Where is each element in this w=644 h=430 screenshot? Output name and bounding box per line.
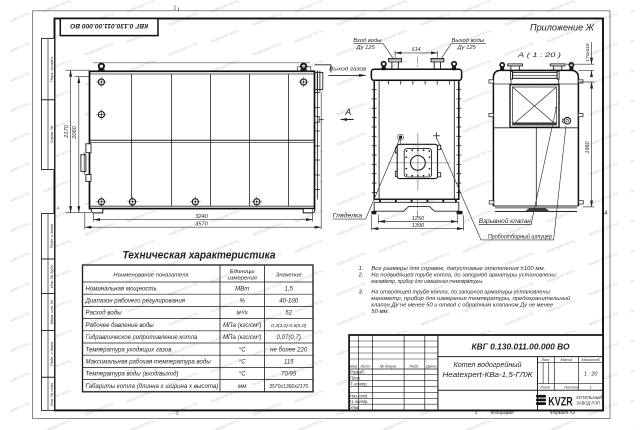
svg-text:2060: 2060	[72, 125, 78, 139]
svg-text:А ( 1 : 20 ): А ( 1 : 20 )	[517, 52, 561, 59]
svg-text:Все размеры для справок, допус: Все размеры для справок, допустимые откл…	[371, 266, 545, 272]
svg-text:клапан Ду не менее 50 и отвод: клапан Ду не менее 50 и отвод с обратным…	[371, 302, 554, 308]
svg-text:614: 614	[412, 47, 421, 53]
svg-text:На отводящей трубе котла, до з: На отводящей трубе котла, до запорной ар…	[371, 289, 551, 296]
svg-text:Инв. № дубл.: Инв. № дубл.	[49, 264, 54, 288]
svg-text:Расход воды: Расход воды	[86, 310, 123, 317]
svg-text:Диапазон рабочего регулировани: Диапазон рабочего регулирования	[85, 298, 186, 305]
svg-text:Лист: Лист	[539, 385, 551, 390]
svg-text:манометр, прибор для измерения: манометр, прибор для измерения температу…	[371, 295, 571, 302]
svg-text:2170: 2170	[64, 124, 70, 138]
svg-text:115: 115	[284, 359, 294, 366]
svg-text:50 мм.: 50 мм.	[371, 309, 389, 315]
svg-text:КОТЕЛЬНЫЙ: КОТЕЛЬНЫЙ	[576, 395, 602, 400]
svg-text:52: 52	[285, 310, 292, 317]
svg-text:1: 1	[174, 6, 177, 12]
svg-text:Номинальная мощность: Номинальная мощность	[86, 285, 157, 292]
svg-text:Подп.: Подп.	[409, 363, 419, 368]
svg-text:Т. контр.: Т. контр.	[350, 381, 368, 386]
svg-text:1: 1	[590, 385, 592, 390]
svg-text:Выход газов: Выход газов	[329, 66, 366, 72]
svg-text:Взам. инв. №: Взам. инв. №	[49, 299, 54, 324]
svg-text:°С: °С	[239, 371, 246, 378]
svg-text:Н. контр.: Н. контр.	[350, 399, 368, 404]
svg-text:3570х1390х2170: 3570х1390х2170	[269, 384, 308, 390]
svg-text:№ докум.: № докум.	[380, 363, 397, 368]
svg-text:Пров.: Пров.	[350, 375, 361, 380]
svg-text:Перв. примен.: Перв. примен.	[49, 56, 54, 82]
svg-text:Масштаб: Масштаб	[582, 357, 601, 362]
svg-text:Значение: Значение	[276, 272, 303, 278]
svg-text:Ду 125: Ду 125	[457, 45, 477, 51]
svg-text:%: %	[239, 298, 245, 305]
svg-text:0,3(3,0)-0,6(6,0): 0,3(3,0)-0,6(6,0)	[271, 323, 307, 329]
svg-text:Листов: Листов	[563, 385, 578, 390]
svg-text:Справ. №: Справ. №	[49, 125, 54, 143]
svg-text:0,07(0,7): 0,07(0,7)	[277, 334, 301, 341]
svg-text:40-100: 40-100	[279, 298, 299, 305]
svg-text:КВГ 0.130.011.00.000 ВО: КВГ 0.130.011.00.000 ВО	[69, 22, 148, 29]
svg-text:МВт: МВт	[235, 285, 249, 292]
svg-text:170х616: 170х616	[585, 43, 591, 62]
svg-text:Утв.: Утв.	[350, 405, 359, 410]
svg-text:Лит.: Лит.	[540, 357, 550, 362]
svg-text:1.: 1.	[359, 266, 364, 272]
svg-text:Температура уходящих газов: Температура уходящих газов	[86, 346, 172, 353]
svg-text:Ду 125: Ду 125	[356, 45, 376, 51]
svg-text:Подп. и дата: Подп. и дата	[49, 341, 54, 366]
svg-text:А: А	[344, 107, 351, 117]
svg-text:м³/ч: м³/ч	[237, 310, 249, 317]
svg-text:1960: 1960	[585, 142, 591, 154]
svg-text:Котел водогрейный: Котел водогрейный	[454, 361, 522, 369]
svg-text:Изм.: Изм.	[350, 363, 358, 368]
svg-text:А: А	[56, 206, 60, 211]
svg-text:Пробоотборный штуцер: Пробоотборный штуцер	[488, 233, 553, 240]
svg-text:МПа (кгс/см²): МПа (кгс/см²)	[223, 322, 261, 329]
svg-text:Единицы: Единицы	[230, 269, 255, 275]
svg-text:1 : 20: 1 : 20	[584, 372, 598, 378]
svg-text:измерения: измерения	[227, 276, 257, 282]
svg-text:не более 220: не более 220	[270, 346, 308, 353]
svg-text:Лист: Лист	[359, 363, 371, 368]
svg-text:Температура воды (вход/выход): Температура воды (вход/выход)	[86, 371, 179, 378]
svg-text:1: 1	[475, 410, 478, 415]
svg-text:Копировал: Копировал	[491, 410, 514, 415]
svg-text:Наименование показателя: Наименование показателя	[113, 272, 189, 278]
svg-text:Масса: Масса	[561, 357, 573, 362]
svg-text:2: 2	[176, 411, 179, 416]
svg-text:манометр, прибор для измерения: манометр, прибор для измерения температу…	[371, 279, 483, 285]
svg-text:3240: 3240	[195, 214, 208, 220]
svg-text:А: А	[603, 211, 608, 217]
svg-text:Взрывной клапан: Взрывной клапан	[479, 218, 532, 225]
svg-text:На подводящей трубе котла, до: На подводящей трубе котла, до запорной а…	[371, 272, 557, 279]
svg-text:Нач. отд.: Нач. отд.	[350, 393, 368, 398]
svg-text:Рабочее давление воды: Рабочее давление воды	[86, 322, 155, 329]
svg-text:Дата: Дата	[425, 363, 437, 368]
svg-text:КВГ 0.130.011.00.000 ВО: КВГ 0.130.011.00.000 ВО	[472, 341, 570, 351]
svg-text:Heatexpert-КВа-1,5-ГЛЖ: Heatexpert-КВа-1,5-ГЛЖ	[443, 372, 534, 379]
svg-text:мм: мм	[238, 383, 247, 390]
svg-text:Формат А3: Формат А3	[550, 410, 576, 415]
svg-text:ЗАВОД РЭП: ЗАВОД РЭП	[576, 401, 600, 406]
svg-text:1390: 1390	[412, 223, 425, 229]
svg-text:1,5: 1,5	[284, 285, 293, 292]
svg-text:3.: 3.	[359, 290, 364, 296]
svg-text:Гидравлическое сопротивление к: Гидравлическое сопротивление котла	[86, 334, 199, 341]
svg-text:Гляделка: Гляделка	[333, 214, 363, 220]
svg-text:Подп. и дата: Подп. и дата	[49, 223, 54, 248]
svg-text:°С: °С	[239, 346, 246, 353]
svg-text:Габариты котла (длинна х ширин: Габариты котла (длинна х ширина х высота…	[86, 383, 219, 390]
svg-text:KVZR: KVZR	[548, 395, 573, 408]
svg-text:Приложение Ж: Приложение Ж	[530, 23, 595, 33]
svg-text:70/95: 70/95	[281, 371, 297, 378]
svg-text:1250: 1250	[412, 216, 425, 222]
svg-text:2.: 2.	[358, 273, 364, 279]
svg-text:Разраб.: Разраб.	[350, 369, 365, 374]
svg-text:Техническая характеристика: Техническая характеристика	[123, 250, 276, 262]
svg-text:МПа (кгс/см²): МПа (кгс/см²)	[223, 334, 261, 341]
svg-text:3570: 3570	[195, 222, 208, 228]
svg-text:Инв. № подл.: Инв. № подл.	[49, 382, 54, 406]
svg-text:°С: °С	[239, 359, 246, 366]
svg-text:Максимальная рабочая температу: Максимальная рабочая температура воды	[86, 359, 212, 366]
